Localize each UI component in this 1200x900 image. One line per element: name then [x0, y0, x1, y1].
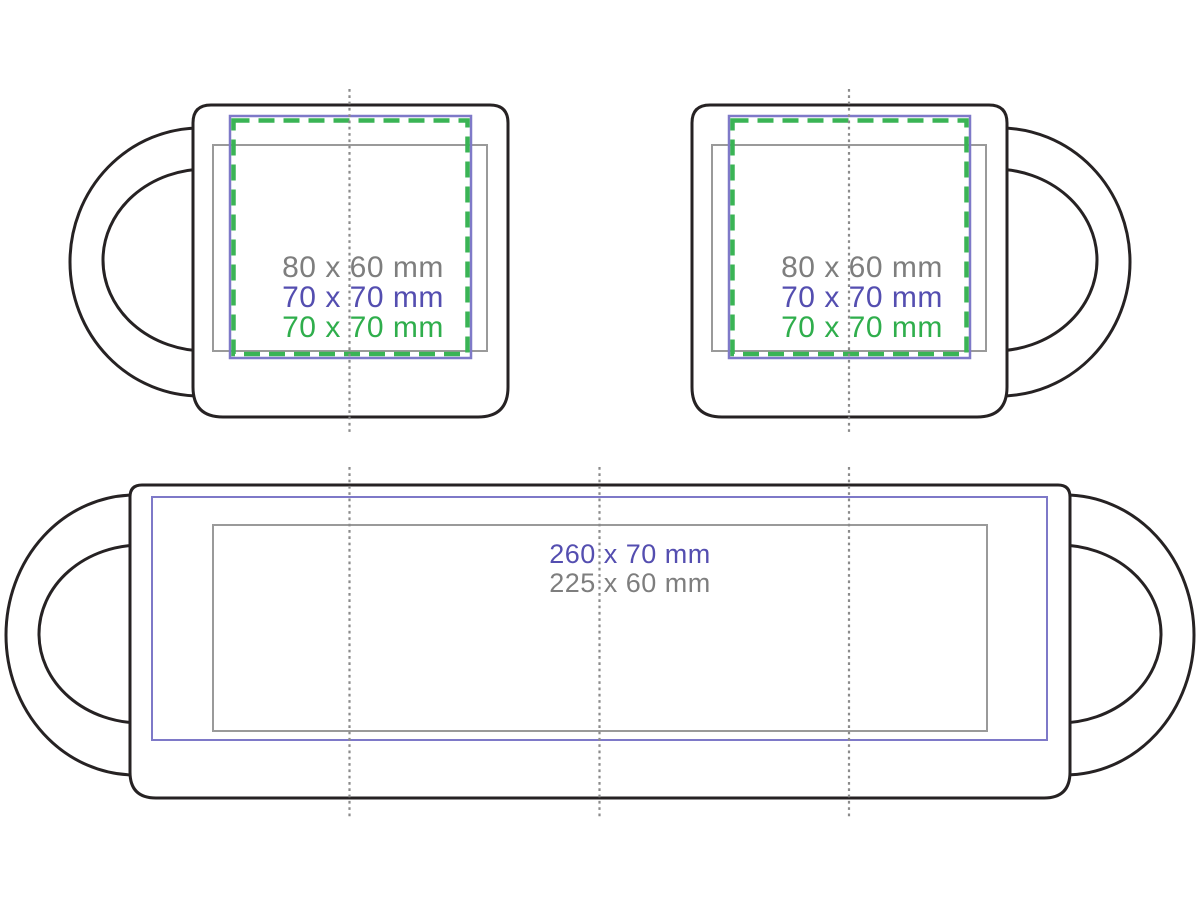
print-area-label-gray: 225 x 60 mm: [549, 568, 711, 598]
print-area-label-gray: 80 x 60 mm: [781, 251, 943, 284]
print-area-label-blue: 70 x 70 mm: [781, 281, 943, 314]
print-area-label-green: 70 x 70 mm: [781, 311, 943, 344]
print-area-label-gray: 80 x 60 mm: [282, 251, 444, 284]
figure-side-view-handle-left: 80 x 60 mm 70 x 70 mm 70 x 70 mm: [70, 89, 508, 432]
print-area-label-blue: 70 x 70 mm: [282, 281, 444, 314]
mug-print-template-drawing: 80 x 60 mm 70 x 70 mm 70 x 70 mm 80 x 60…: [0, 0, 1200, 900]
mug-print-template-sheet: 80 x 60 mm 70 x 70 mm 70 x 70 mm 80 x 60…: [0, 0, 1200, 900]
figure-wrap-around-view: 260 x 70 mm 225 x 60 mm: [6, 467, 1194, 817]
print-area-label-green: 70 x 70 mm: [282, 311, 444, 344]
figure-side-view-handle-right: 80 x 60 mm 70 x 70 mm 70 x 70 mm: [692, 89, 1130, 432]
print-area-label-blue: 260 x 70 mm: [549, 539, 711, 569]
